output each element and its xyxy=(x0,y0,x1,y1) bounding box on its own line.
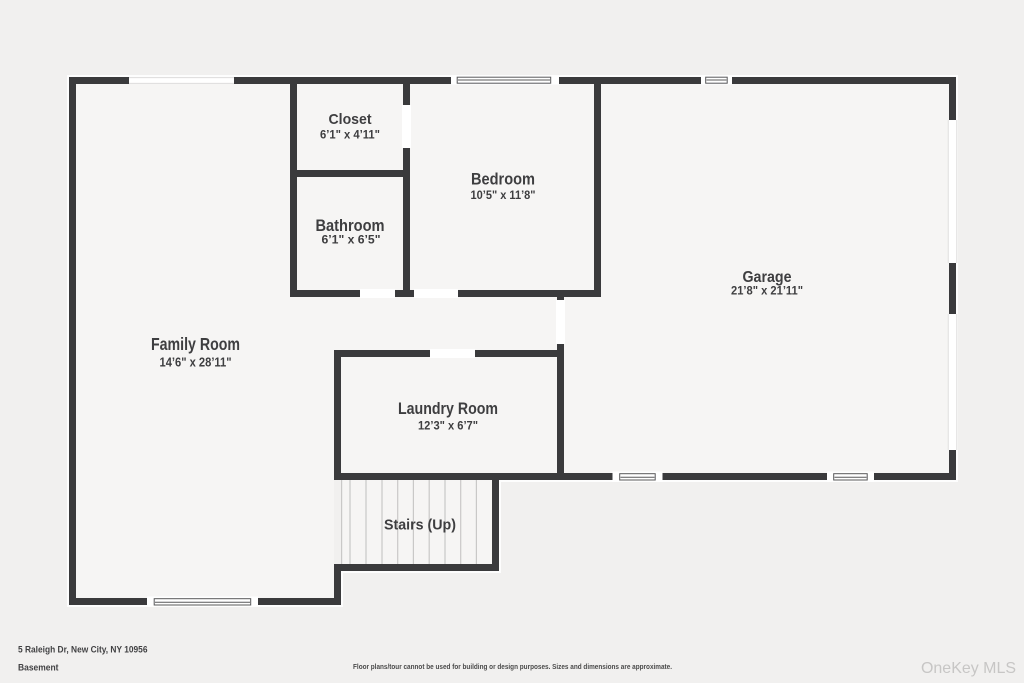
svg-text:Laundry Room: Laundry Room xyxy=(398,400,498,418)
svg-text:5 Raleigh Dr, New City, NY 109: 5 Raleigh Dr, New City, NY 10956 xyxy=(18,645,148,656)
svg-text:6’1" x 4’11": 6’1" x 4’11" xyxy=(320,128,380,142)
svg-text:Stairs (Up): Stairs (Up) xyxy=(384,518,456,534)
svg-text:Closet: Closet xyxy=(329,111,372,128)
svg-text:Basement: Basement xyxy=(18,663,59,674)
svg-text:10’5" x 11’8": 10’5" x 11’8" xyxy=(471,188,536,202)
svg-text:OneKey MLS: OneKey MLS xyxy=(921,660,1016,677)
svg-text:14’6" x 28’11": 14’6" x 28’11" xyxy=(160,355,232,370)
svg-text:Floor plans/tour cannot be use: Floor plans/tour cannot be used for buil… xyxy=(353,664,672,671)
svg-text:12’3" x 6’7": 12’3" x 6’7" xyxy=(418,419,478,433)
svg-text:Family Room: Family Room xyxy=(151,334,240,354)
svg-text:Bedroom: Bedroom xyxy=(471,171,535,189)
svg-text:6’1" x 6’5": 6’1" x 6’5" xyxy=(322,233,381,247)
svg-text:21’8" x 21’11": 21’8" x 21’11" xyxy=(731,284,803,298)
